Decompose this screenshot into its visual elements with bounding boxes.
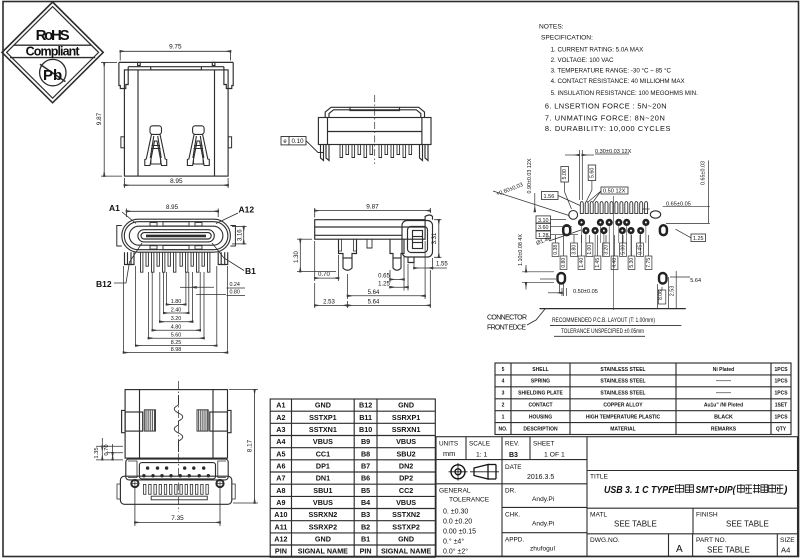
svg-text:8.95: 8.95 xyxy=(170,178,183,185)
svg-text:HIGH TEMPERATURE PLASTIC: HIGH TEMPERATURE PLASTIC xyxy=(586,414,661,420)
svg-text:mm: mm xyxy=(443,449,455,458)
svg-text:SIZE: SIZE xyxy=(780,537,795,544)
svg-text:DESCRIPTION: DESCRIPTION xyxy=(523,426,558,432)
svg-text:B1: B1 xyxy=(361,535,370,544)
svg-text:Ni Plated: Ni Plated xyxy=(713,367,734,373)
svg-text:A11: A11 xyxy=(275,522,288,531)
svg-text:———: ——— xyxy=(716,391,731,397)
svg-text:1PCS: 1PCS xyxy=(774,367,788,373)
svg-text:9.75: 9.75 xyxy=(169,44,182,51)
svg-text:0.50±0.05: 0.50±0.05 xyxy=(573,289,598,295)
svg-text:Au1u" /Nl Ploted: Au1u" /Nl Ploted xyxy=(704,403,743,409)
svg-text:DP2: DP2 xyxy=(399,474,413,483)
svg-text:NO.: NO. xyxy=(499,426,509,432)
svg-text:1: 1 xyxy=(502,414,505,420)
svg-text:): ) xyxy=(783,485,788,496)
svg-text:B7: B7 xyxy=(361,462,370,471)
svg-text:Andy.Pi: Andy.Pi xyxy=(532,496,555,503)
svg-text:COPPER ALLOY: COPPER ALLOY xyxy=(603,403,643,409)
svg-text:3. TEMPERATURE RANGE: -30 °C ~: 3. TEMPERATURE RANGE: -30 °C ~ 85 °C xyxy=(551,67,672,74)
svg-text:2.53: 2.53 xyxy=(670,286,676,297)
svg-text:REMARKS: REMARKS xyxy=(711,426,737,432)
svg-text:1SET: 1SET xyxy=(775,403,788,409)
svg-text:A10: A10 xyxy=(274,510,287,519)
svg-text:8.06: 8.06 xyxy=(658,290,664,300)
svg-text:SPECIFICATION:: SPECIFICATION: xyxy=(541,34,593,41)
svg-text:5.64: 5.64 xyxy=(368,299,380,305)
svg-text:0.00 ±0.15: 0.00 ±0.15 xyxy=(443,529,476,536)
svg-text:8.17: 8.17 xyxy=(247,439,254,452)
svg-text:B6: B6 xyxy=(361,474,370,483)
svg-text:CC1: CC1 xyxy=(316,449,330,458)
svg-text:UNITS: UNITS xyxy=(439,441,458,448)
svg-text:A6: A6 xyxy=(276,462,285,471)
svg-text:GND: GND xyxy=(315,535,331,544)
svg-text:B12: B12 xyxy=(359,401,372,410)
svg-text:SSTXP2: SSTXP2 xyxy=(392,522,420,531)
svg-text:A: A xyxy=(676,544,683,555)
svg-text:0.70: 0.70 xyxy=(318,272,330,278)
svg-text:0.24: 0.24 xyxy=(229,282,240,288)
svg-text:B3: B3 xyxy=(361,510,370,519)
svg-text:DN1: DN1 xyxy=(316,474,330,483)
svg-text:5.00: 5.00 xyxy=(620,245,626,255)
svg-text:SEE TABLE: SEE TABLE xyxy=(614,520,657,529)
svg-text:1.35: 1.35 xyxy=(94,447,100,458)
svg-text:Compliant: Compliant xyxy=(26,45,81,59)
svg-text:A7: A7 xyxy=(276,474,285,483)
svg-text:B12: B12 xyxy=(96,279,112,289)
svg-text:GND: GND xyxy=(398,401,414,410)
svg-text:QTY: QTY xyxy=(776,426,787,432)
svg-text:A4: A4 xyxy=(781,546,790,555)
svg-text:Andy.Pi: Andy.Pi xyxy=(532,521,555,528)
svg-text:3: 3 xyxy=(502,391,505,397)
svg-text:0.80: 0.80 xyxy=(561,258,567,268)
svg-text:Pb: Pb xyxy=(43,67,62,84)
svg-text:9.87: 9.87 xyxy=(96,112,103,125)
svg-text:3.60: 3.60 xyxy=(538,225,549,231)
svg-text:5.64: 5.64 xyxy=(368,290,380,296)
svg-text:B9: B9 xyxy=(361,437,370,446)
svg-text:1.45: 1.45 xyxy=(595,258,601,268)
svg-text:STAINLESS STEEL: STAINLESS STEEL xyxy=(600,367,645,373)
svg-text:SBU2: SBU2 xyxy=(397,449,416,458)
svg-text:1.25: 1.25 xyxy=(378,282,390,288)
svg-text:GND: GND xyxy=(398,535,414,544)
svg-text:SIGNAL NAME: SIGNAL NAME xyxy=(381,547,431,556)
svg-text:3.20: 3.20 xyxy=(171,316,182,322)
svg-text:3.16: 3.16 xyxy=(238,229,244,241)
svg-text:A5: A5 xyxy=(276,449,285,458)
svg-text:DN2: DN2 xyxy=(399,462,413,471)
svg-text:SSRXP2: SSRXP2 xyxy=(309,522,337,531)
svg-text:B10: B10 xyxy=(359,425,372,434)
svg-text:A8: A8 xyxy=(276,486,285,495)
svg-text:A12: A12 xyxy=(239,205,255,215)
svg-text:8.95: 8.95 xyxy=(166,204,179,211)
svg-text:0.45: 0.45 xyxy=(637,245,643,255)
svg-text:USB 3. 1 C TYPE: USB 3. 1 C TYPE xyxy=(604,485,675,496)
svg-text:1 OF 1: 1 OF 1 xyxy=(544,452,565,459)
svg-text:4.80: 4.80 xyxy=(171,325,182,331)
svg-text:1.30: 1.30 xyxy=(294,251,300,263)
svg-text:SHEET: SHEET xyxy=(533,441,554,448)
svg-text:RoHS: RoHS xyxy=(36,27,70,44)
svg-text:MATERIAL: MATERIAL xyxy=(610,426,635,432)
svg-text:1PCS: 1PCS xyxy=(774,391,788,397)
svg-text:RECOMMENDED P.C.B. LAYOUT (T:: RECOMMENDED P.C.B. LAYOUT (T: 1.00mm) xyxy=(552,317,655,324)
svg-text:A2: A2 xyxy=(276,413,285,422)
svg-text:SSRXP1: SSRXP1 xyxy=(392,413,420,422)
svg-text:0.70: 0.70 xyxy=(104,444,110,455)
svg-text:A1: A1 xyxy=(276,401,285,410)
svg-text:0.10: 0.10 xyxy=(291,138,304,145)
svg-text:BLACK: BLACK xyxy=(714,414,733,420)
svg-text:FRONT EDCE: FRONT EDCE xyxy=(487,325,526,332)
svg-text:0.65±0.03: 0.65±0.03 xyxy=(701,161,707,185)
svg-text:2: 2 xyxy=(502,403,505,409)
svg-text:5.00: 5.00 xyxy=(562,169,568,180)
svg-text:SSTXN2: SSTXN2 xyxy=(392,510,420,519)
svg-text:CC2: CC2 xyxy=(399,486,413,495)
svg-text:VBUS: VBUS xyxy=(396,437,416,446)
svg-text:1.56: 1.56 xyxy=(544,194,555,200)
svg-text:4: 4 xyxy=(502,379,505,385)
svg-text:B2: B2 xyxy=(361,522,370,531)
svg-text:1: 1: 1: 1 xyxy=(476,452,488,459)
svg-text:TOLERANCE: TOLERANCE xyxy=(449,497,490,504)
svg-text:STAINLESS STEEL: STAINLESS STEEL xyxy=(600,391,645,397)
svg-text:0.65±0.05: 0.65±0.05 xyxy=(666,202,691,208)
svg-text:SHIELDING PLATE: SHIELDING PLATE xyxy=(518,391,563,397)
svg-text:DATE: DATE xyxy=(505,464,522,471)
svg-text:0.90±0.03 12X: 0.90±0.03 12X xyxy=(527,158,533,193)
svg-text:SEE TABLE: SEE TABLE xyxy=(707,546,750,555)
svg-text:8.98: 8.98 xyxy=(171,347,182,353)
svg-text:B3: B3 xyxy=(509,452,518,459)
svg-text:A3: A3 xyxy=(276,425,285,434)
svg-text:A9: A9 xyxy=(276,498,285,507)
svg-text:PIN: PIN xyxy=(360,547,372,556)
svg-text:5.30: 5.30 xyxy=(629,258,635,268)
svg-text:B8: B8 xyxy=(361,449,370,458)
svg-text:SSRXN2: SSRXN2 xyxy=(309,510,338,519)
svg-text:SBU1: SBU1 xyxy=(313,486,332,495)
svg-text:0.0 ±0.20: 0.0 ±0.20 xyxy=(443,519,472,526)
svg-text:0.° ±4°: 0.° ±4° xyxy=(443,538,464,546)
svg-text:APPD.: APPD. xyxy=(505,537,524,544)
svg-text:SMT+DIP(: SMT+DIP( xyxy=(696,485,737,496)
svg-text:1PCS: 1PCS xyxy=(774,414,788,420)
svg-text:SSTXP1: SSTXP1 xyxy=(309,413,337,422)
svg-text:0.50 12X: 0.50 12X xyxy=(603,189,626,195)
svg-text:TOLERANCE UNSPECIFIED ±0.05mm: TOLERANCE UNSPECIFIED ±0.05mm xyxy=(561,328,644,335)
svg-text:5.60: 5.60 xyxy=(171,333,182,339)
svg-text:8.25: 8.25 xyxy=(171,340,182,346)
svg-text:1PCS: 1PCS xyxy=(774,379,788,385)
svg-text:5. INSULATION RESISTANCE: 100: 5. INSULATION RESISTANCE: 100 MEGOHMS MI… xyxy=(551,90,699,97)
svg-text:6. LNSERTION FORCE : 5N~20N: 6. LNSERTION FORCE : 5N~20N xyxy=(545,102,667,111)
svg-text:4. CONTACT RESISTANCE: 40 MILL: 4. CONTACT RESISTANCE: 40 MILLIOHM MAX xyxy=(551,78,685,85)
svg-text:SEE TABLE: SEE TABLE xyxy=(726,520,769,529)
svg-text:NOTES:: NOTES: xyxy=(539,24,564,31)
svg-text:0.65: 0.65 xyxy=(378,274,390,280)
svg-text:0.80: 0.80 xyxy=(229,290,240,296)
svg-text:A12: A12 xyxy=(274,535,287,544)
svg-text:5.64: 5.64 xyxy=(690,278,701,284)
svg-text:1.80: 1.80 xyxy=(171,299,182,305)
svg-text:PART NO.: PART NO. xyxy=(696,537,727,544)
svg-text:4.40: 4.40 xyxy=(612,258,618,268)
svg-text:SCALE: SCALE xyxy=(469,441,490,448)
svg-text:SHELL: SHELL xyxy=(532,367,548,373)
svg-text:HOUSING: HOUSING xyxy=(529,414,552,420)
svg-text:A4: A4 xyxy=(276,437,285,446)
svg-text:GENERAL: GENERAL xyxy=(439,488,471,495)
svg-text:7.35: 7.35 xyxy=(171,515,184,522)
svg-text:1.10±0.08 4X: 1.10±0.08 4X xyxy=(518,234,524,266)
svg-text:B5: B5 xyxy=(361,486,370,495)
svg-text:1.40: 1.40 xyxy=(579,258,585,268)
svg-text:2.53: 2.53 xyxy=(323,299,335,305)
svg-text:CONNECTOR: CONNECTOR xyxy=(487,315,527,322)
svg-text:7. UNMATING FORCE: 8N~20N: 7. UNMATING FORCE: 8N~20N xyxy=(545,114,665,123)
svg-text:GND: GND xyxy=(315,401,331,410)
svg-text:2.40: 2.40 xyxy=(171,307,182,313)
svg-text:CHK.: CHK. xyxy=(505,512,520,519)
svg-text:DR.: DR. xyxy=(505,488,516,495)
svg-text:SIGNAL NAME: SIGNAL NAME xyxy=(298,547,348,556)
svg-text:SSTXN1: SSTXN1 xyxy=(309,425,337,434)
svg-text:B4: B4 xyxy=(361,498,370,507)
svg-text:9.87: 9.87 xyxy=(366,203,379,210)
svg-text:3.20: 3.20 xyxy=(603,245,609,255)
svg-text:SSRXN1: SSRXN1 xyxy=(392,425,421,434)
svg-text:TITLE: TITLE xyxy=(590,474,609,481)
svg-text:0.38: 0.38 xyxy=(553,245,559,255)
svg-text:8. DURABILITY: 10,000 CYCLES: 8. DURABILITY: 10,000 CYCLES xyxy=(545,124,671,133)
svg-text:SPRING: SPRING xyxy=(531,379,550,385)
svg-text:0. ±0.30: 0. ±0.30 xyxy=(443,509,468,516)
svg-text:0.0° ±2°: 0.0° ±2° xyxy=(443,548,468,556)
svg-text:DP1: DP1 xyxy=(316,462,330,471)
svg-text:1.55: 1.55 xyxy=(436,262,448,268)
svg-text:2016.3.5: 2016.3.5 xyxy=(527,474,554,481)
svg-text:7.75: 7.75 xyxy=(646,258,652,268)
svg-text:1.00: 1.00 xyxy=(587,245,593,255)
svg-text:zhufogul: zhufogul xyxy=(530,546,555,553)
svg-text:VBUS: VBUS xyxy=(313,437,333,446)
svg-text:CONTACT: CONTACT xyxy=(528,403,552,409)
svg-text:3.80: 3.80 xyxy=(571,245,577,255)
svg-text:———: ——— xyxy=(716,379,731,385)
svg-text:1.25: 1.25 xyxy=(693,236,704,242)
svg-text:5: 5 xyxy=(502,367,505,373)
svg-text:DWG.NO.: DWG.NO. xyxy=(590,537,620,544)
svg-text:1. CURRENT RATING: 5.0A MAX: 1. CURRENT RATING: 5.0A MAX xyxy=(551,47,644,54)
svg-text:B11: B11 xyxy=(359,413,372,422)
svg-text:VBUS: VBUS xyxy=(396,498,416,507)
svg-text:MATL: MATL xyxy=(590,512,607,519)
svg-text:B1: B1 xyxy=(245,266,256,276)
svg-text:STAINLESS STEEL: STAINLESS STEEL xyxy=(600,379,645,385)
svg-text:2. VOLTAGE: 100 VAC: 2. VOLTAGE: 100 VAC xyxy=(551,57,614,64)
svg-text:5.60: 5.60 xyxy=(589,168,595,179)
svg-text:A1: A1 xyxy=(109,203,120,213)
svg-text:PIN: PIN xyxy=(275,547,287,556)
svg-text:VBUS: VBUS xyxy=(313,498,333,507)
svg-text:REV.: REV. xyxy=(505,441,520,448)
svg-text:FINISH: FINISH xyxy=(696,512,718,519)
svg-text:3.31: 3.31 xyxy=(432,232,438,244)
